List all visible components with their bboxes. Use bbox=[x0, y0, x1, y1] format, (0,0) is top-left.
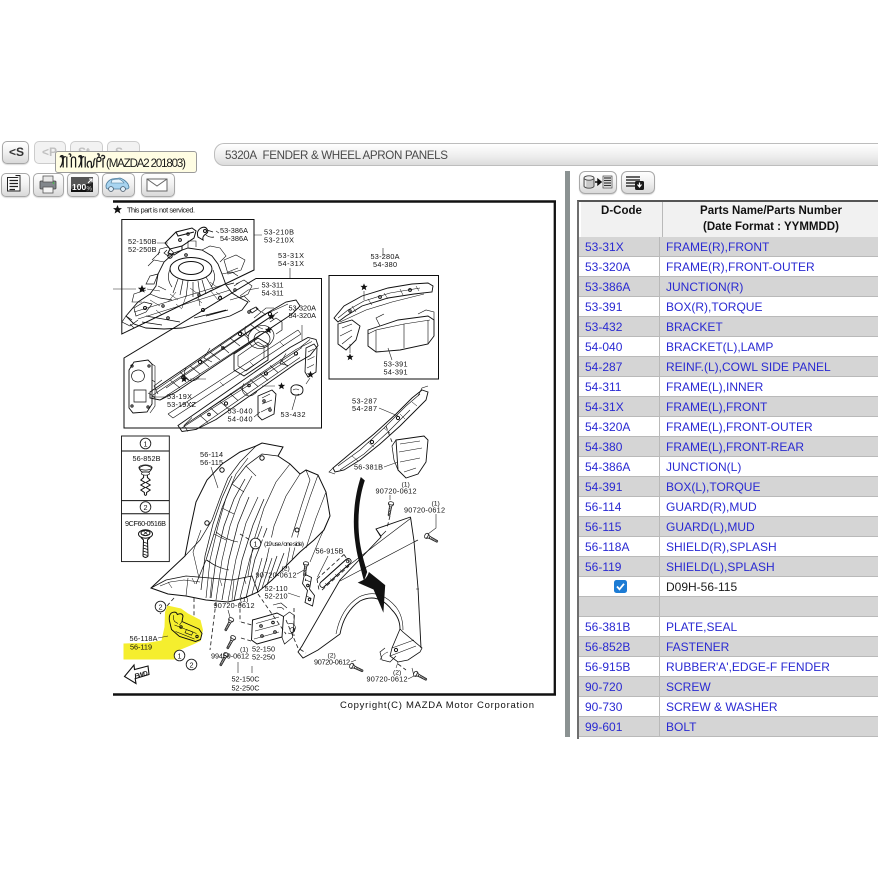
svg-text:52-250C: 52-250C bbox=[232, 684, 260, 693]
svg-text:54-287: 54-287 bbox=[352, 404, 377, 413]
svg-text:9CF60-0516B: 9CF60-0516B bbox=[125, 519, 166, 528]
svg-text:56-381B: 56-381B bbox=[354, 463, 383, 472]
svg-text:2: 2 bbox=[190, 660, 194, 669]
svg-text:(19 use / one side): (19 use / one side) bbox=[264, 541, 304, 548]
svg-text:90720-0612: 90720-0612 bbox=[256, 571, 297, 580]
svg-text:2: 2 bbox=[144, 503, 148, 512]
svg-text:1: 1 bbox=[178, 651, 182, 660]
svg-text:52-250B: 52-250B bbox=[128, 245, 157, 254]
svg-text:53-210X: 53-210X bbox=[264, 236, 294, 245]
svg-text:52-250: 52-250 bbox=[252, 653, 275, 662]
svg-text:54-320A: 54-320A bbox=[289, 311, 317, 320]
svg-text:56-115: 56-115 bbox=[200, 458, 223, 467]
svg-text:(MAZDA2 201803): (MAZDA2 201803) bbox=[106, 158, 186, 170]
svg-text:1: 1 bbox=[254, 539, 258, 548]
svg-text:54-31X: 54-31X bbox=[278, 259, 304, 268]
svg-text:53-19XZ: 53-19XZ bbox=[167, 400, 197, 409]
svg-text:54-040: 54-040 bbox=[228, 414, 253, 423]
svg-text:90720-0612: 90720-0612 bbox=[404, 506, 445, 515]
svg-text:52-150C: 52-150C bbox=[232, 675, 260, 684]
svg-text:56-119: 56-119 bbox=[130, 643, 152, 652]
svg-text:1: 1 bbox=[144, 439, 148, 448]
svg-text:52-210: 52-210 bbox=[265, 591, 288, 600]
svg-text:56-915B: 56-915B bbox=[316, 547, 344, 556]
svg-text:90720-0612: 90720-0612 bbox=[376, 487, 417, 496]
svg-text:54-311: 54-311 bbox=[262, 289, 284, 298]
svg-text:Copyright(C) MAZDA Motor Corpo: Copyright(C) MAZDA Motor Corporation bbox=[340, 700, 534, 711]
svg-text:90720-0612: 90720-0612 bbox=[214, 601, 255, 610]
svg-text:90720-0612: 90720-0612 bbox=[367, 675, 408, 684]
svg-text:54-380: 54-380 bbox=[373, 260, 397, 269]
svg-text:54-386A: 54-386A bbox=[220, 234, 248, 243]
svg-text:This part is not serviced.: This part is not serviced. bbox=[127, 206, 195, 215]
svg-text:54-391: 54-391 bbox=[384, 367, 408, 376]
svg-text:53-432: 53-432 bbox=[281, 410, 306, 419]
svg-text:56-852B: 56-852B bbox=[133, 454, 161, 463]
svg-text:99459-0612: 99459-0612 bbox=[211, 652, 249, 661]
svg-text:2: 2 bbox=[159, 602, 163, 611]
svg-text:90720-0612: 90720-0612 bbox=[314, 658, 350, 667]
